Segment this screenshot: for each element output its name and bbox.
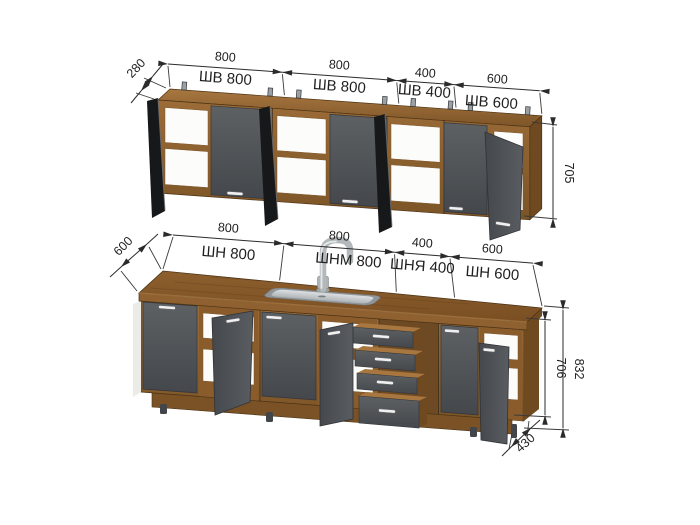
label-lower-cabinet-4: ШН 600 <box>465 263 520 284</box>
door-handle <box>227 191 243 195</box>
label-lower-cabinet-1: ШН 800 <box>201 243 256 264</box>
dim-lower-width-1: 800 <box>217 220 239 236</box>
dim-upper-width-1: 800 <box>214 49 236 64</box>
lower-door-closed-2 <box>262 312 316 400</box>
door-handle <box>342 199 358 203</box>
cabinet-opening <box>391 165 440 205</box>
label-upper-cabinet-3: ШВ 400 <box>397 81 451 102</box>
cabinet-opening <box>277 116 326 155</box>
drawer-stack <box>353 323 427 428</box>
cabinet-opening <box>165 149 208 188</box>
dim-lower-width-2: 800 <box>328 228 350 244</box>
label-upper-cabinet-1: ШВ 800 <box>198 68 252 89</box>
lower-door-open-2 <box>320 323 353 426</box>
dim-lower-width-3: 400 <box>411 235 433 251</box>
dim-upper-width-4: 600 <box>486 71 508 86</box>
kitchen-dimension-diagram: 800 800 400 600 ШВ 800 ШВ 800 ШВ 400 ШВ … <box>0 0 700 525</box>
cabinet-opening <box>277 157 326 197</box>
door-handle <box>444 329 459 333</box>
diagram-canvas: 800 800 400 600 ШВ 800 ШВ 800 ШВ 400 ШВ … <box>0 0 700 525</box>
lower-door-open-3 <box>479 343 509 444</box>
dim-upper-height: 705 <box>562 163 576 184</box>
cabinet-opening <box>165 108 208 146</box>
upper-depth-dimension: 280 <box>124 56 166 103</box>
door-handle <box>449 206 463 210</box>
dim-upper-width-2: 800 <box>328 57 350 72</box>
lower-right-side <box>524 317 539 421</box>
lower-left-side <box>133 301 141 397</box>
dim-upper-depth: 280 <box>124 56 148 81</box>
dim-lower-total-height: 832 <box>572 359 586 380</box>
dim-upper-width-3: 400 <box>414 65 436 80</box>
door-handle <box>266 315 282 319</box>
label-lower-cabinet-3: ШНЯ 400 <box>389 256 455 278</box>
dim-lower-width-4: 600 <box>481 241 503 257</box>
lower-door-closed-3 <box>441 325 478 415</box>
upper-door-closed-3 <box>444 123 487 215</box>
dim-lower-cabinet-height: 706 <box>554 358 568 379</box>
dim-lower-depth: 600 <box>111 234 136 259</box>
cabinet-opening <box>391 124 440 163</box>
lower-door-closed-1 <box>143 302 197 393</box>
upper-right-side <box>530 116 542 220</box>
drawer-box-side <box>419 397 427 428</box>
lower-door-open-1 <box>212 311 253 415</box>
upper-door-open-4 <box>485 132 523 240</box>
label-upper-cabinet-2: ШВ 800 <box>312 76 366 97</box>
